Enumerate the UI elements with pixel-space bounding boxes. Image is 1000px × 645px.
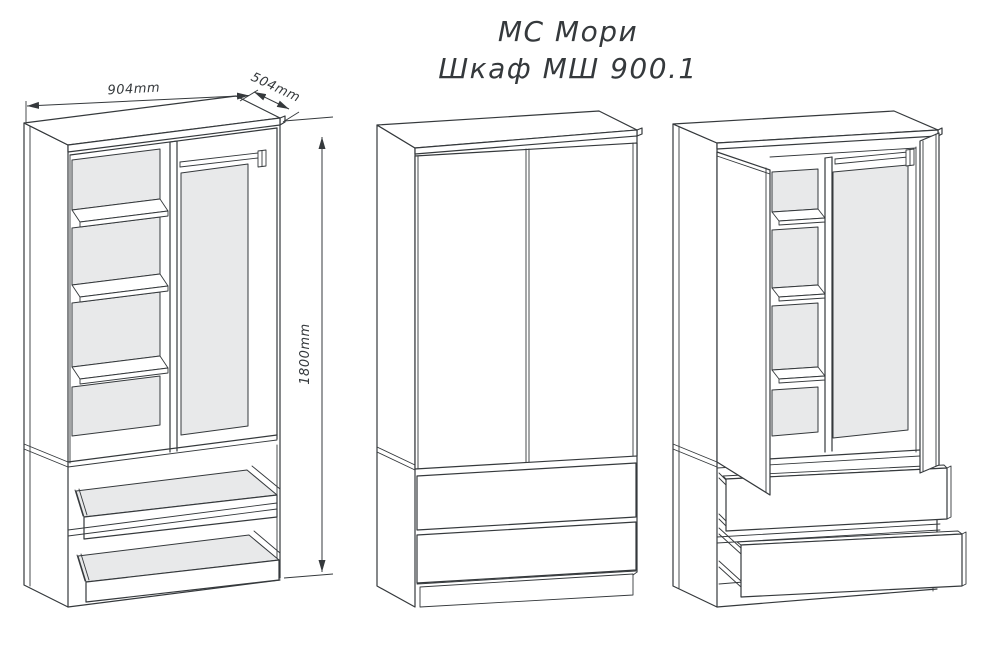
back-panel	[833, 165, 908, 438]
shelf	[772, 367, 825, 383]
drawer-open-bottom	[77, 531, 280, 602]
top-panel-side-edge	[637, 128, 642, 136]
center-divider	[170, 141, 177, 452]
back-panel	[72, 292, 160, 367]
interior	[770, 147, 916, 452]
shelf	[772, 285, 825, 301]
side-panel	[24, 123, 68, 607]
back-panel	[772, 227, 818, 288]
opening-top-edge	[770, 148, 916, 157]
title-line-2: Шкаф МШ 900.1	[438, 52, 698, 85]
doors-closed	[415, 143, 637, 469]
drawer-rail	[719, 534, 741, 554]
drawer-front	[741, 534, 962, 597]
depth-dimension-label: 504mm	[248, 70, 302, 106]
back-panel	[181, 164, 248, 435]
drawing-sheet: МС Мори Шкаф МШ 900.1	[0, 0, 1000, 645]
drawer-front	[417, 463, 636, 530]
drawing-title: МС Мори Шкаф МШ 900.1	[438, 15, 698, 85]
hanging-rod	[180, 150, 266, 167]
interior	[70, 128, 277, 463]
drawer-pulled-bottom	[719, 528, 966, 597]
back-panel	[72, 376, 160, 436]
view-open-dimensioned: 904mm 504mm 1800mm	[24, 70, 333, 607]
view-closed	[377, 111, 642, 607]
drawer-front	[417, 522, 636, 583]
drawer-open-top	[75, 466, 280, 539]
furniture-diagram: МС Мори Шкаф МШ 900.1	[0, 0, 1000, 645]
door-left-open	[717, 152, 770, 495]
door-right-open	[920, 133, 939, 473]
title-line-1: МС Мори	[498, 15, 638, 48]
dimension-height: 1800mm	[284, 117, 333, 578]
height-dimension-label: 1800mm	[298, 323, 313, 384]
drawer-rail	[719, 561, 741, 581]
side-panel	[673, 124, 717, 607]
drawer-fronts	[417, 463, 636, 583]
view-open-doors	[673, 111, 966, 607]
back-panel	[772, 169, 818, 212]
back-panel	[772, 303, 818, 370]
top-panel-side-edge	[280, 116, 285, 125]
back-panel	[72, 217, 160, 285]
center-divider	[825, 157, 832, 452]
back-panel	[772, 387, 818, 436]
hanging-rod	[835, 149, 914, 166]
width-dimension-label: 904mm	[107, 81, 160, 99]
side-panel	[377, 125, 415, 607]
shelf	[772, 209, 825, 225]
door-panel	[717, 152, 770, 495]
